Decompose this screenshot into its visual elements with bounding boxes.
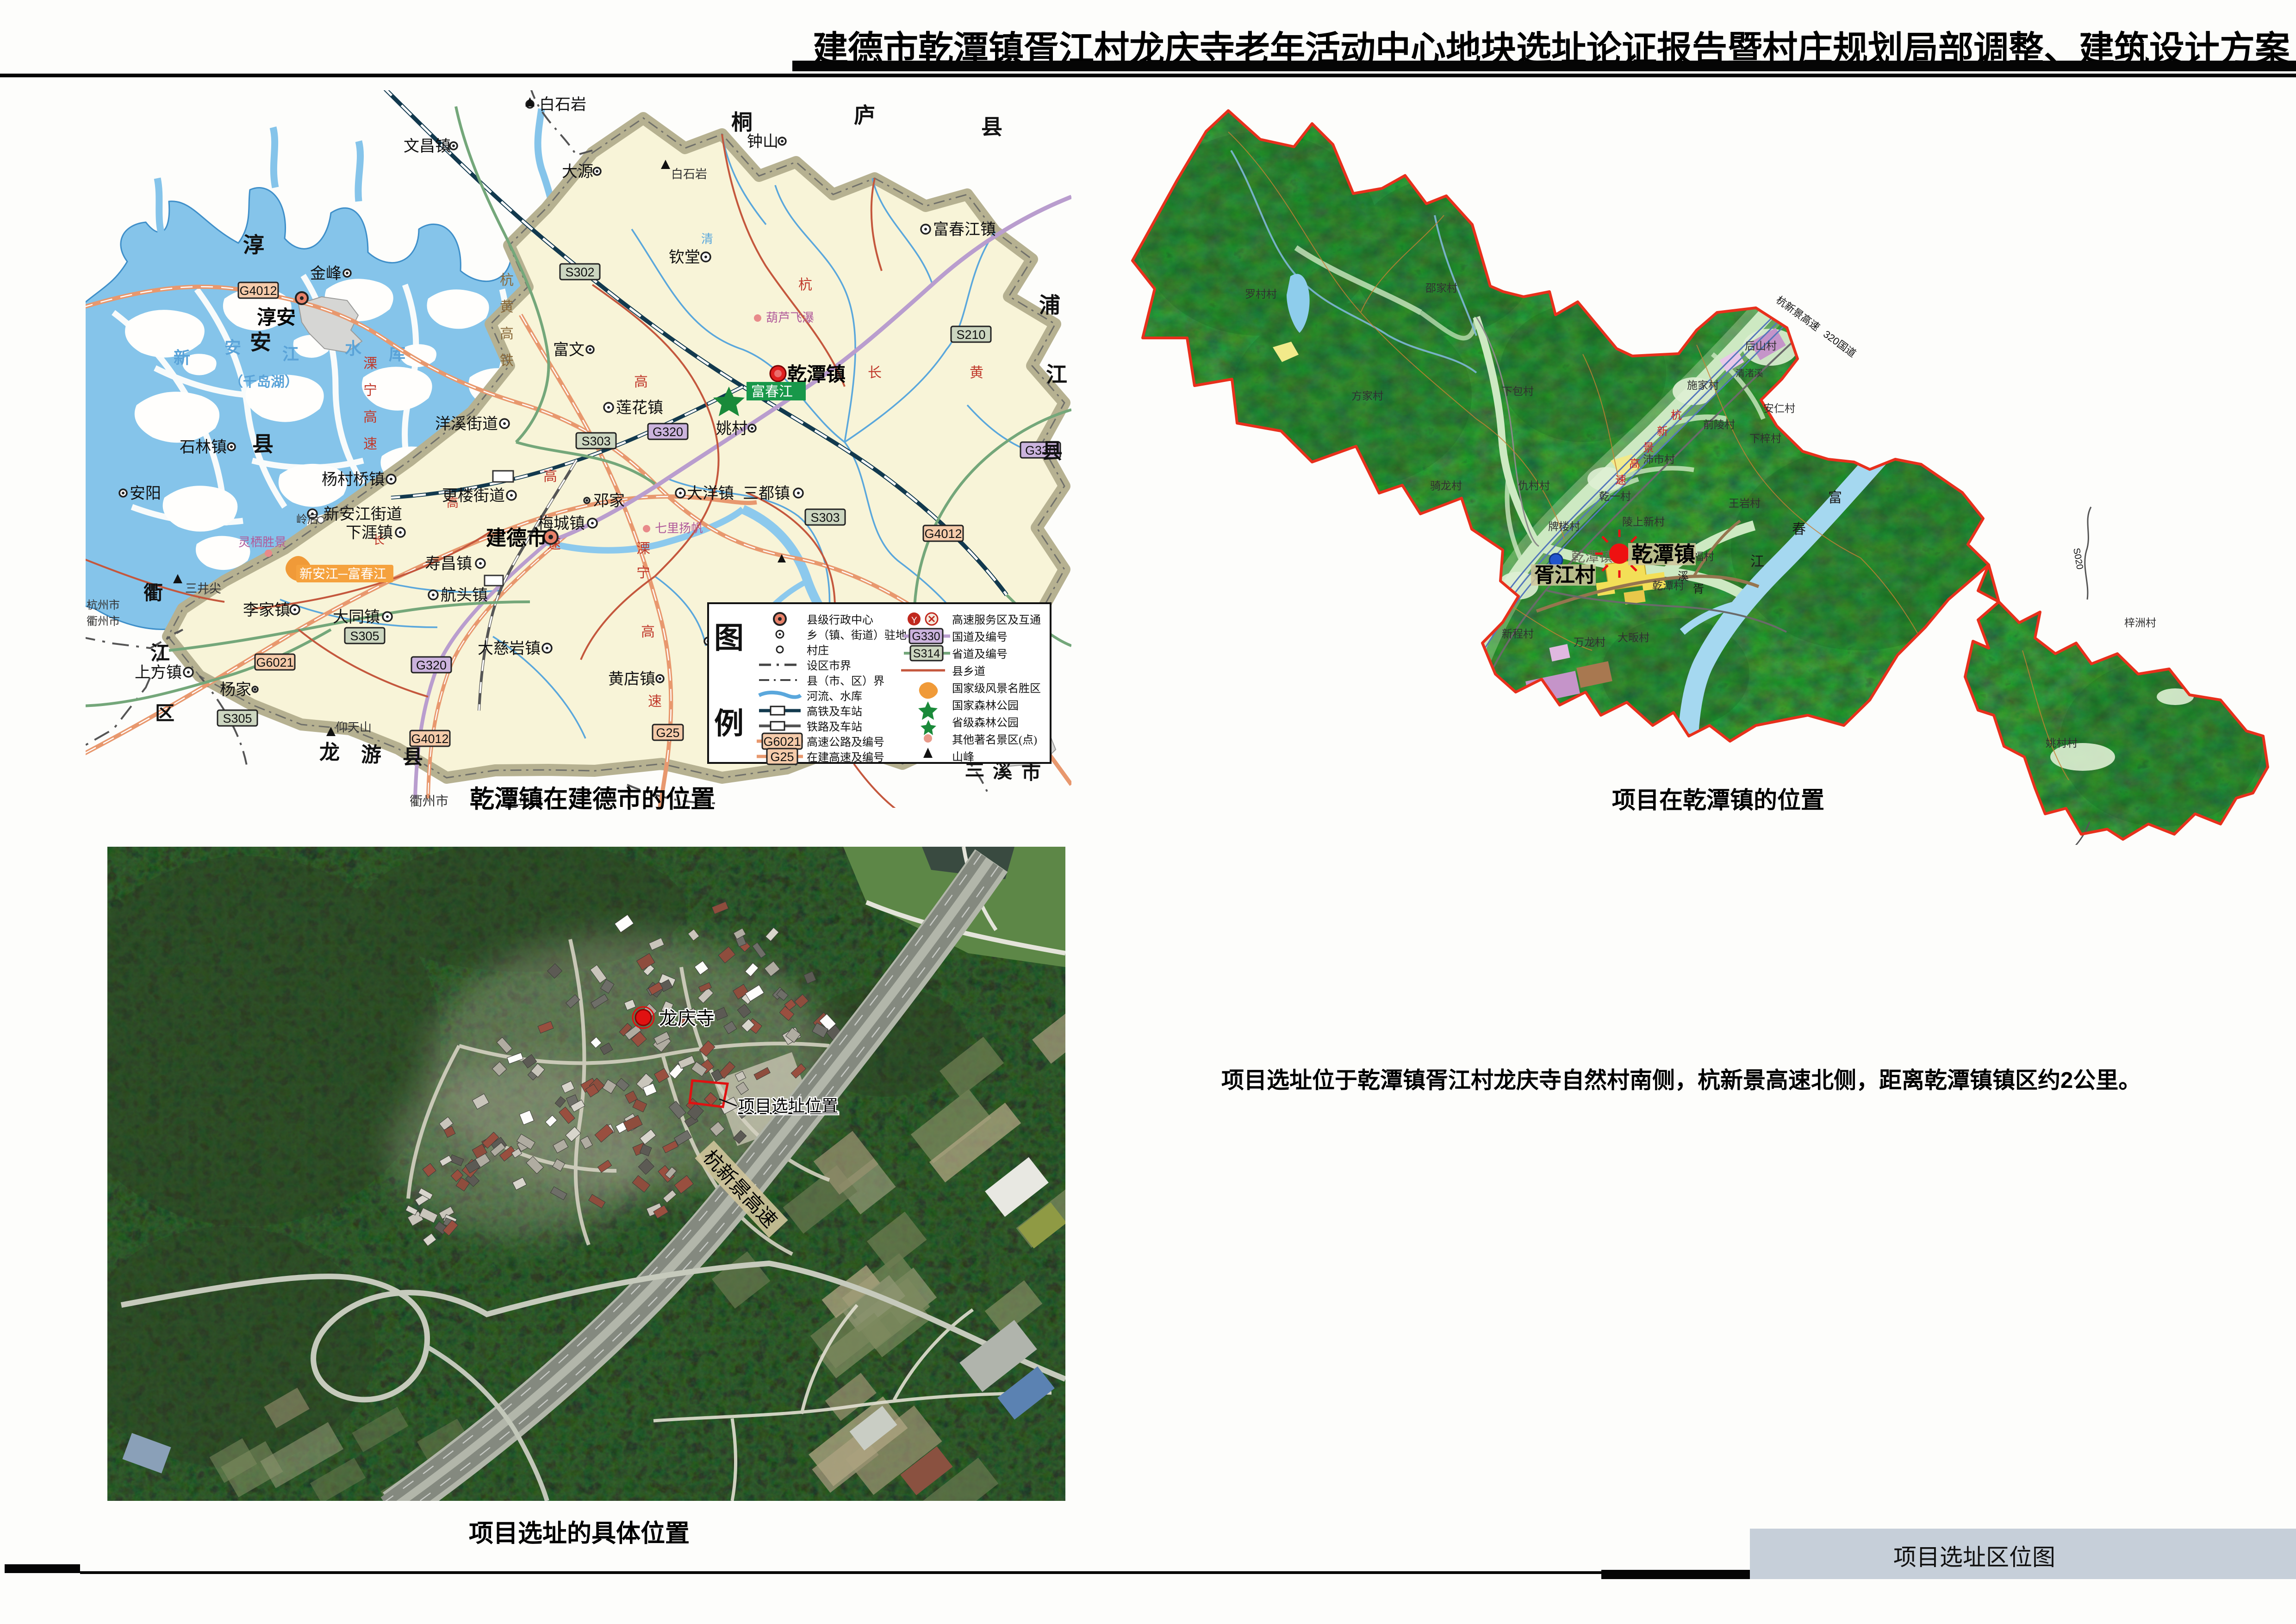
svg-text:白石岩: 白石岩 <box>671 167 707 181</box>
svg-text:国道及编号: 国道及编号 <box>952 631 1008 643</box>
svg-text:大畈村: 大畈村 <box>1618 632 1649 643</box>
svg-text:下涯镇: 下涯镇 <box>346 524 393 542</box>
svg-text:富春江镇: 富春江镇 <box>933 221 996 238</box>
svg-text:龙: 龙 <box>319 741 340 764</box>
svg-text:高: 高 <box>634 375 648 390</box>
svg-text:宁: 宁 <box>636 565 650 581</box>
svg-text:新程村: 新程村 <box>1502 628 1534 640</box>
svg-text:S303: S303 <box>810 511 840 525</box>
svg-text:富: 富 <box>1828 490 1842 506</box>
svg-text:县: 县 <box>981 115 1002 139</box>
svg-text:淳安: 淳安 <box>257 306 296 328</box>
svg-text:沛市村: 沛市村 <box>1643 454 1675 465</box>
svg-text:大慈岩镇: 大慈岩镇 <box>478 640 541 657</box>
svg-text:高: 高 <box>641 625 655 640</box>
svg-text:钦堂: 钦堂 <box>669 249 700 266</box>
svg-text:铁: 铁 <box>500 353 514 369</box>
svg-text:黄店镇: 黄店镇 <box>608 670 655 688</box>
svg-text:速: 速 <box>1615 474 1626 487</box>
svg-text:安: 安 <box>224 338 241 357</box>
svg-text:S314: S314 <box>913 647 940 660</box>
svg-text:项目选址位置: 项目选址位置 <box>738 1096 838 1115</box>
svg-text:山峰: 山峰 <box>952 751 974 763</box>
svg-text:春: 春 <box>1792 522 1806 537</box>
svg-text:石林镇: 石林镇 <box>180 438 227 456</box>
svg-text:王岩村: 王岩村 <box>1729 498 1761 509</box>
svg-text:铁路及车站: 铁路及车站 <box>807 721 862 733</box>
svg-text:李家镇: 李家镇 <box>243 601 290 619</box>
svg-text:陵上新村: 陵上新村 <box>1622 516 1665 528</box>
svg-text:（千岛湖）: （千岛湖） <box>229 374 299 390</box>
svg-text:葫芦飞瀑: 葫芦飞瀑 <box>766 311 814 325</box>
svg-text:省级森林公园: 省级森林公园 <box>952 717 1019 729</box>
svg-text:杭: 杭 <box>1671 409 1682 422</box>
svg-text:邓家: 邓家 <box>593 492 625 510</box>
svg-text:江: 江 <box>282 344 299 363</box>
svg-text:杨村桥镇: 杨村桥镇 <box>322 471 385 488</box>
svg-text:乡（镇、街道）驻地: 乡（镇、街道）驻地 <box>807 629 907 642</box>
svg-text:文昌镇: 文昌镇 <box>404 137 451 155</box>
svg-text:仇村村: 仇村村 <box>1518 480 1550 492</box>
svg-text:安: 安 <box>250 331 271 354</box>
svg-text:省道及编号: 省道及编号 <box>952 648 1008 661</box>
svg-text:新安江街道: 新安江街道 <box>324 506 402 523</box>
svg-text:设区市界: 设区市界 <box>807 660 851 672</box>
svg-text:S305: S305 <box>223 712 252 725</box>
svg-text:牌楼村: 牌楼村 <box>1548 521 1580 532</box>
svg-text:大源: 大源 <box>562 163 593 181</box>
svg-text:莲花镇: 莲花镇 <box>616 399 663 417</box>
svg-text:洋溪街道: 洋溪街道 <box>435 415 498 433</box>
svg-text:航头镇: 航头镇 <box>441 587 488 604</box>
svg-text:三井尖: 三井尖 <box>185 581 221 595</box>
svg-text:乾一村: 乾一村 <box>1599 491 1631 502</box>
svg-text:胥江村: 胥江村 <box>1534 564 1595 587</box>
svg-text:杭: 杭 <box>500 273 514 288</box>
svg-text:G320: G320 <box>653 425 683 439</box>
svg-text:邵家村: 邵家村 <box>1425 282 1457 294</box>
svg-text:S303: S303 <box>581 434 610 448</box>
svg-text:方家村: 方家村 <box>1351 390 1383 402</box>
svg-text:国家森林公园: 国家森林公园 <box>952 700 1019 712</box>
svg-text:G6021: G6021 <box>256 656 293 669</box>
svg-text:钟山: 钟山 <box>747 133 778 150</box>
svg-text:其他著名景区(点): 其他著名景区(点) <box>952 734 1037 746</box>
svg-text:下梓村: 下梓村 <box>1749 433 1781 444</box>
svg-text:安仁村: 安仁村 <box>1763 403 1795 414</box>
svg-text:更楼街道: 更楼街道 <box>442 487 505 505</box>
svg-text:七里扬帆: 七里扬帆 <box>655 521 703 535</box>
svg-text:S305: S305 <box>350 629 379 643</box>
svg-text:万龙村: 万龙村 <box>1574 637 1605 648</box>
svg-text:桐: 桐 <box>731 111 753 134</box>
svg-text:Y: Y <box>911 616 917 625</box>
svg-text:乾潭镇: 乾潭镇 <box>787 363 846 385</box>
svg-text:G6021: G6021 <box>763 735 801 749</box>
svg-text:罗村村: 罗村村 <box>1245 288 1277 300</box>
svg-text:县: 县 <box>403 746 423 768</box>
svg-text:淳: 淳 <box>243 233 264 257</box>
svg-text:前陵村: 前陵村 <box>1703 419 1735 431</box>
svg-text:梓洲村: 梓洲村 <box>2124 617 2156 629</box>
svg-text:宁: 宁 <box>363 383 377 398</box>
svg-text:乾潭镇: 乾潭镇 <box>1571 550 1613 565</box>
svg-text:龙庆寺: 龙庆寺 <box>659 1008 715 1029</box>
svg-text:建德市: 建德市 <box>486 527 547 550</box>
svg-text:金峰: 金峰 <box>310 265 342 282</box>
svg-text:图: 图 <box>714 621 744 655</box>
svg-text:浦: 浦 <box>1039 294 1060 317</box>
svg-text:清: 清 <box>701 232 713 246</box>
svg-text:高铁及车站: 高铁及车站 <box>807 706 862 718</box>
svg-text:富文: 富文 <box>553 341 585 359</box>
svg-text:高速服务区及互通: 高速服务区及互通 <box>952 614 1041 626</box>
svg-text:S020: S020 <box>2071 547 2085 570</box>
svg-text:高: 高 <box>1629 458 1640 470</box>
svg-text:G4012: G4012 <box>924 527 962 541</box>
svg-text:黄: 黄 <box>970 365 983 381</box>
svg-text:乾潭镇: 乾潭镇 <box>1631 542 1695 566</box>
svg-text:例: 例 <box>714 707 744 740</box>
svg-text:320国道: 320国道 <box>1821 328 1858 360</box>
svg-text:杨家: 杨家 <box>220 681 251 699</box>
svg-text:长: 长 <box>868 365 882 381</box>
svg-text:G4012: G4012 <box>411 732 448 746</box>
svg-text:速: 速 <box>363 437 377 452</box>
svg-text:县（市、区）界: 县（市、区）界 <box>807 675 884 687</box>
svg-text:江: 江 <box>1046 363 1067 387</box>
svg-text:G320: G320 <box>416 658 447 672</box>
svg-text:区: 区 <box>155 703 174 725</box>
svg-text:下包村: 下包村 <box>1502 386 1534 397</box>
svg-text:游: 游 <box>361 743 381 766</box>
svg-text:新: 新 <box>174 348 190 367</box>
svg-text:县: 县 <box>252 432 274 456</box>
svg-text:岭后: 岭后 <box>296 513 318 526</box>
svg-text:衢州市: 衢州市 <box>410 794 448 808</box>
svg-text:高速公路及编号: 高速公路及编号 <box>807 736 884 749</box>
svg-text:仰天山: 仰天山 <box>336 720 372 734</box>
svg-text:在建高速及编号: 在建高速及编号 <box>807 751 884 764</box>
svg-text:后山村: 后山村 <box>1745 340 1777 352</box>
svg-text:江: 江 <box>150 643 170 664</box>
svg-text:景: 景 <box>1643 442 1654 454</box>
svg-text:新安江─富春江: 新安江─富春江 <box>299 567 386 581</box>
svg-text:县乡道: 县乡道 <box>952 665 985 678</box>
svg-text:姚村村: 姚村村 <box>2046 737 2078 749</box>
svg-text:黄: 黄 <box>500 300 514 315</box>
svg-text:杭州市: 杭州市 <box>87 599 120 612</box>
svg-text:县级行政中心: 县级行政中心 <box>807 614 873 626</box>
svg-text:灵栖胜景: 灵栖胜景 <box>238 535 286 549</box>
svg-text:三都镇: 三都镇 <box>743 485 790 502</box>
svg-text:市: 市 <box>1021 762 1041 784</box>
svg-text:溪: 溪 <box>993 761 1013 782</box>
svg-text:富春江: 富春江 <box>751 384 793 400</box>
svg-text:上方镇: 上方镇 <box>135 664 182 681</box>
svg-text:大洋镇: 大洋镇 <box>687 485 734 502</box>
svg-text:清渚溪: 清渚溪 <box>1736 368 1763 379</box>
svg-text:溧: 溧 <box>636 541 650 556</box>
svg-text:庐: 庐 <box>854 104 875 127</box>
svg-text:衢: 衢 <box>143 582 163 604</box>
svg-text:G25: G25 <box>656 726 679 740</box>
svg-text:速: 速 <box>648 694 662 709</box>
svg-text:新: 新 <box>1657 425 1668 438</box>
svg-text:S302: S302 <box>565 265 594 279</box>
svg-text:高: 高 <box>500 326 514 342</box>
svg-text:寿昌镇: 寿昌镇 <box>425 555 472 573</box>
svg-text:国家级风景名胜区: 国家级风景名胜区 <box>952 682 1041 695</box>
svg-text:村庄: 村庄 <box>807 644 829 657</box>
svg-text:高: 高 <box>363 410 377 425</box>
svg-text:高: 高 <box>543 469 557 484</box>
svg-text:G4012: G4012 <box>239 284 277 298</box>
svg-text:大同镇: 大同镇 <box>333 608 380 626</box>
svg-text:溪: 溪 <box>1678 570 1689 583</box>
svg-text:白石岩: 白石岩 <box>539 96 586 113</box>
svg-text:胥: 胥 <box>1693 583 1704 595</box>
svg-text:施家村: 施家村 <box>1687 380 1719 391</box>
svg-text:安阳: 安阳 <box>130 485 161 502</box>
svg-text:骑龙村: 骑龙村 <box>1430 480 1462 492</box>
svg-text:水: 水 <box>345 339 362 358</box>
svg-text:河流、水库: 河流、水库 <box>807 690 862 703</box>
svg-text:S210: S210 <box>956 328 985 342</box>
svg-text:溧: 溧 <box>363 356 377 371</box>
svg-text:杭: 杭 <box>798 277 812 293</box>
svg-text:G25: G25 <box>770 750 794 764</box>
svg-text:衢州市: 衢州市 <box>87 615 120 628</box>
svg-text:姚村: 姚村 <box>716 420 747 437</box>
svg-text:县: 县 <box>1041 439 1063 463</box>
svg-text:江: 江 <box>1750 554 1764 569</box>
svg-text:G330: G330 <box>912 630 940 643</box>
